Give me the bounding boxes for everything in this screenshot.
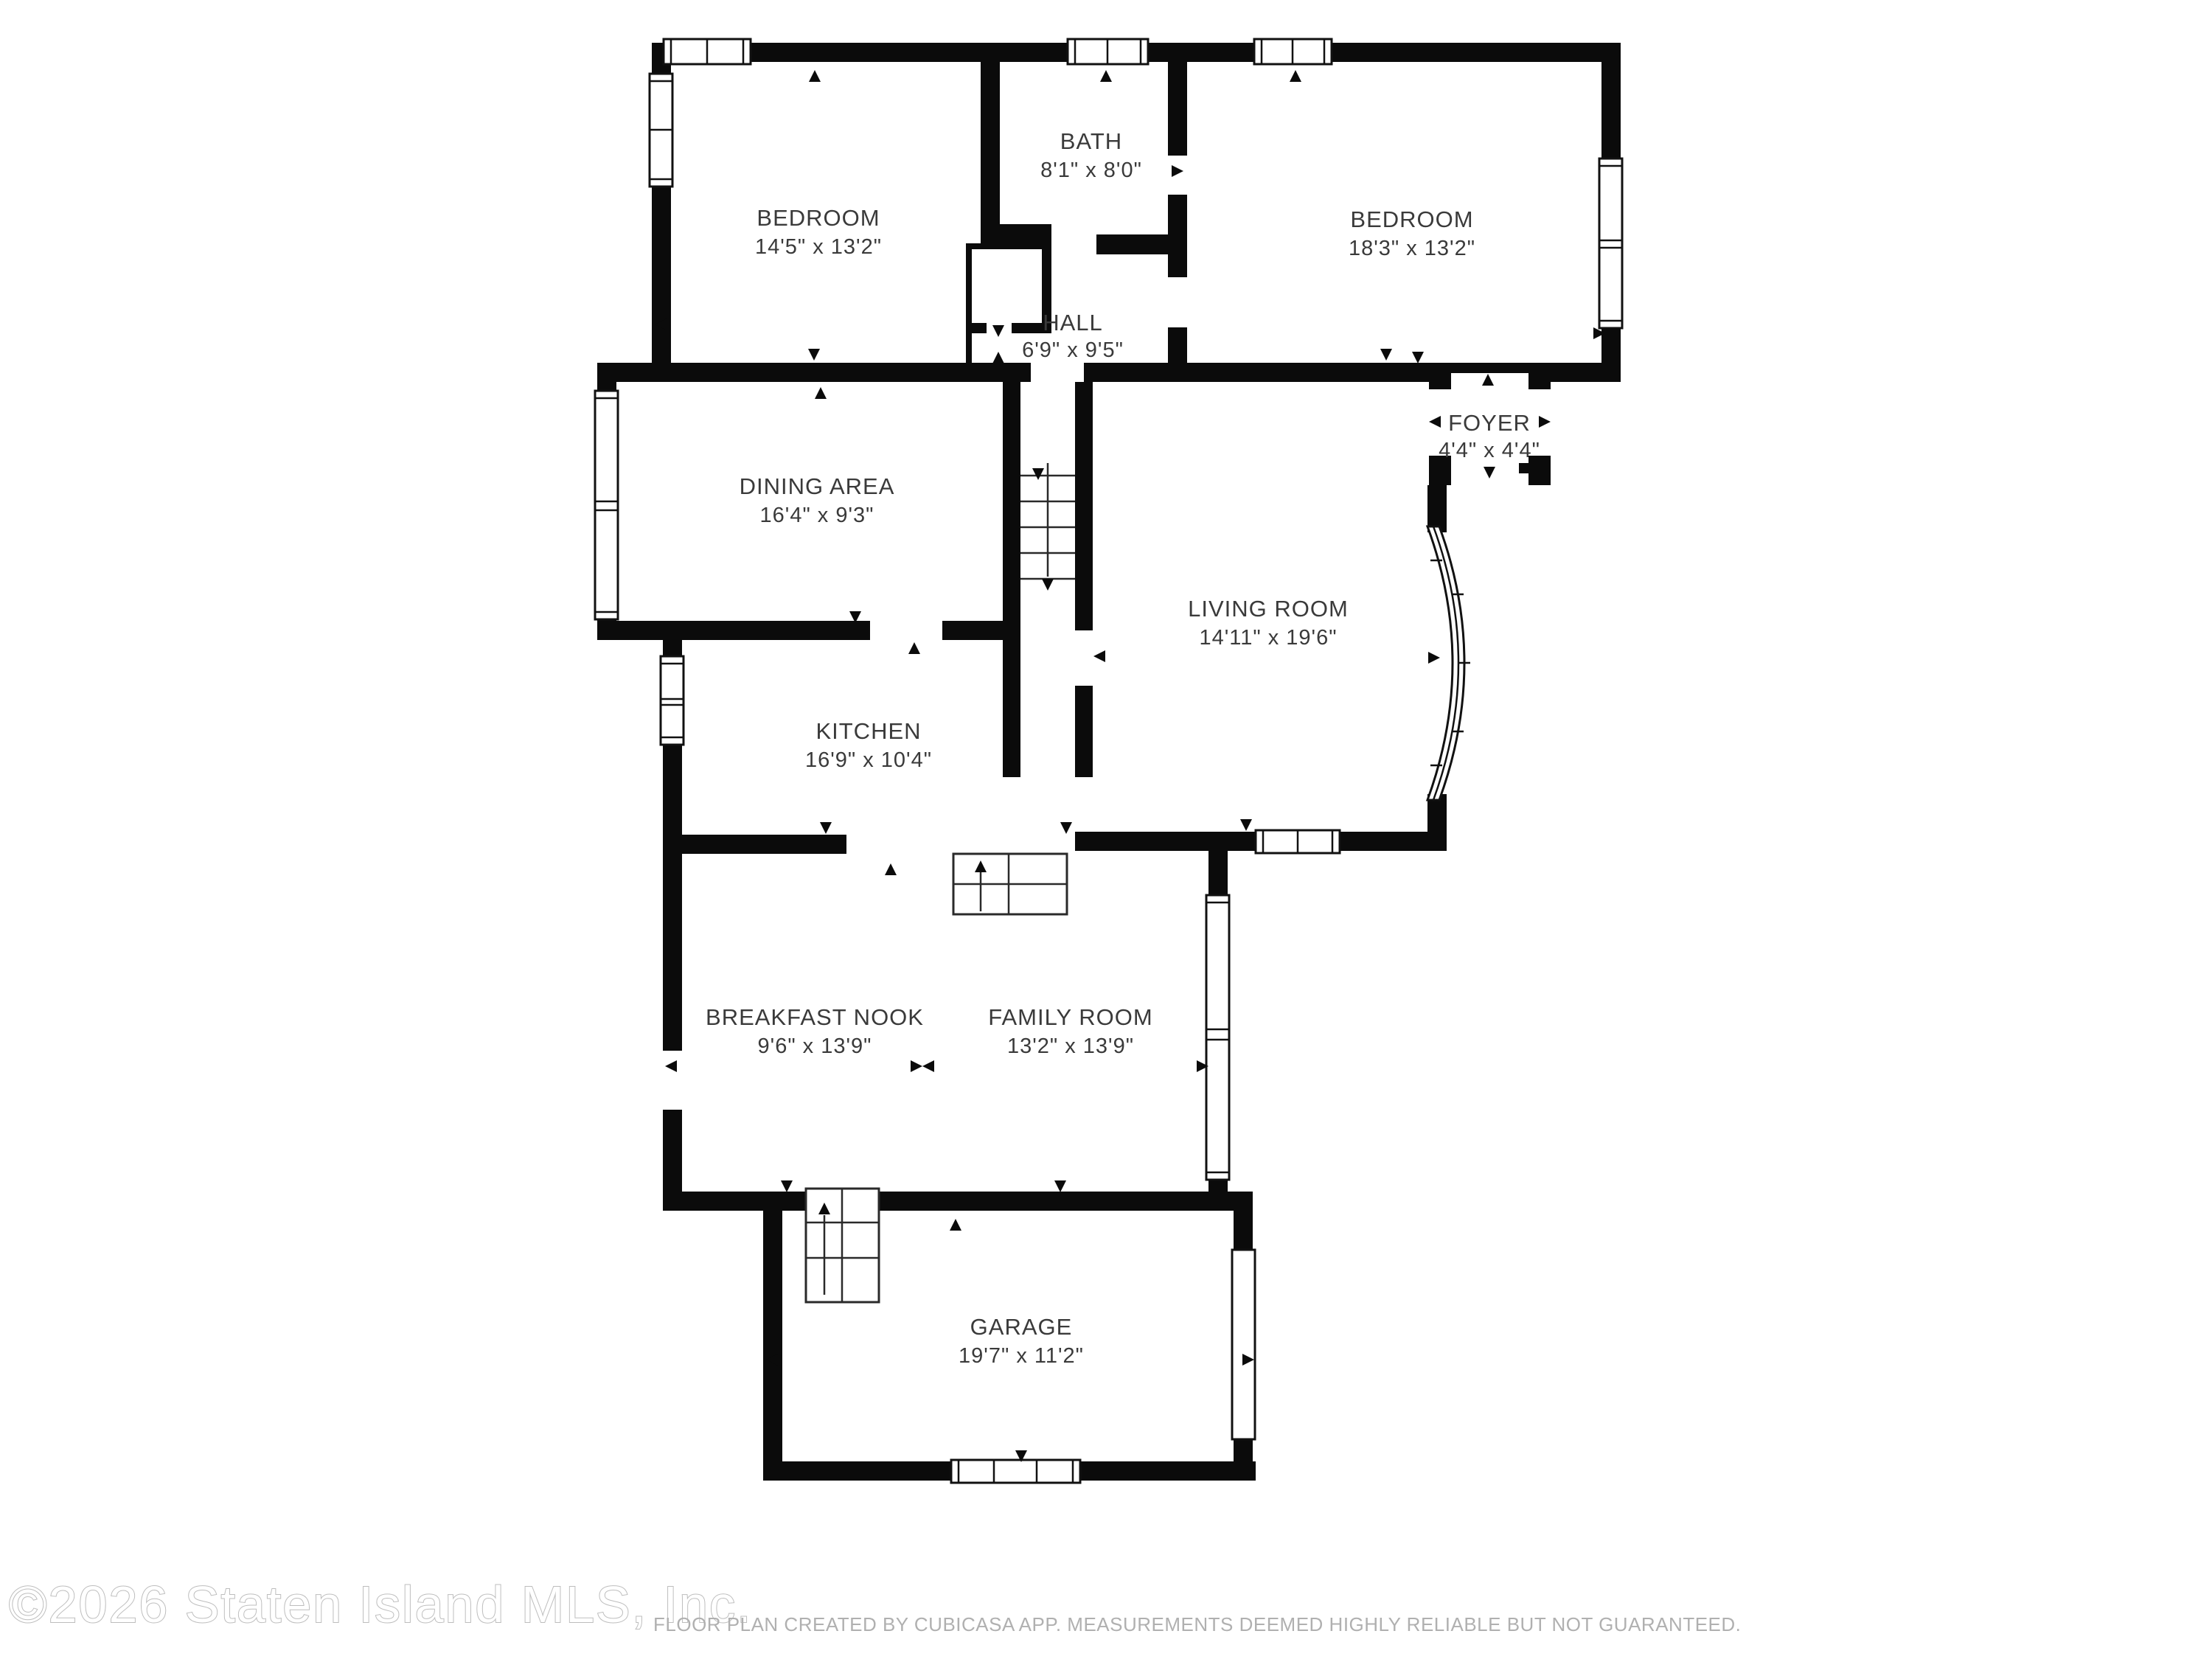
room-label-foyer: FOYER [1448, 410, 1531, 436]
door-marker-icon [908, 642, 920, 654]
door-marker-icon [1482, 374, 1494, 386]
door-markers [655, 70, 1605, 1462]
door-marker-icon [1054, 1180, 1066, 1192]
door-marker-icon [1240, 819, 1252, 831]
room-label-family-room: FAMILY ROOM [988, 1004, 1152, 1030]
room-dims-dining-area: 16'4" x 9'3" [760, 504, 874, 527]
room-label-hall: HALL [1043, 310, 1103, 335]
watermarks: ©2026 Staten Island MLS, Inc. FLOOR PLAN… [9, 1576, 1741, 1635]
room-dims-family-room: 13'2" x 13'9" [1007, 1034, 1134, 1058]
door-marker-icon [665, 1060, 677, 1072]
room-label-bath: BATH [1060, 128, 1122, 154]
room-label-bedroom-right: BEDROOM [1350, 206, 1473, 232]
room-label-dining-area: DINING AREA [740, 473, 895, 499]
door-marker-icon [1093, 650, 1105, 662]
door-marker-icon [1290, 70, 1301, 82]
room-dims-foyer: 4'4" x 4'4" [1439, 439, 1540, 462]
garage-door-opening [1232, 1250, 1255, 1439]
stairs [806, 463, 1075, 1302]
door-marker-icon [808, 349, 820, 361]
door-marker-icon [1032, 468, 1044, 480]
room-label-breakfast-nook: BREAKFAST NOOK [706, 1004, 924, 1030]
door-marker-icon [1060, 822, 1072, 834]
room-dims-garage: 19'7" x 11'2" [959, 1344, 1084, 1368]
window-dining-side [595, 391, 618, 619]
room-dims-kitchen: 16'9" x 10'4" [805, 748, 932, 772]
room-dims-hall: 6'9" x 9'5" [1022, 338, 1124, 362]
disclaimer-text: FLOOR PLAN CREATED BY CUBICASA APP. MEAS… [653, 1613, 1741, 1635]
door-marker-icon [820, 822, 832, 834]
window-bedroom-right-side [1599, 159, 1622, 328]
room-dims-bath: 8'1" x 8'0" [1040, 159, 1142, 182]
door-marker-icon [781, 1180, 793, 1192]
room-label-living-room: LIVING ROOM [1188, 596, 1349, 622]
floor-plan-page: BEDROOM 14'5" x 13'2" BATH 8'1" x 8'0" B… [0, 0, 2212, 1659]
main-stairs-down-arrow [1042, 579, 1054, 591]
door-marker-icon [1380, 349, 1392, 361]
window-garage-bottom [951, 1460, 1080, 1483]
room-dims-living-room: 14'11" x 19'6" [1199, 626, 1337, 650]
door-marker-icon [950, 1219, 961, 1231]
door-marker-icon [885, 863, 897, 875]
door-marker-icon [992, 352, 1004, 364]
door-marker-icon [992, 325, 1004, 337]
window-family-room-side [1206, 895, 1229, 1180]
copyright-watermark: ©2026 Staten Island MLS, Inc. [9, 1576, 752, 1633]
door-marker-icon [922, 1060, 934, 1072]
door-marker-icon [1484, 467, 1495, 479]
door-marker-icon [1429, 416, 1441, 428]
door-marker-icon [809, 70, 821, 82]
room-label-kitchen: KITCHEN [815, 718, 921, 744]
main-stairs-treads [1020, 463, 1075, 579]
door-marker-icon [1100, 70, 1112, 82]
room-dims-bedroom-left: 14'5" x 13'2" [755, 235, 882, 259]
door-marker-icon [1539, 416, 1551, 428]
door-marker-icon [1428, 652, 1440, 664]
door-marker-icon [1412, 352, 1424, 364]
door-marker-icon [911, 1060, 922, 1072]
room-dims-breakfast-nook: 9'6" x 13'9" [758, 1034, 872, 1058]
room-label-garage: GARAGE [970, 1314, 1073, 1340]
room-dims-bedroom-right: 18'3" x 13'2" [1349, 237, 1475, 260]
window-kitchen-side [661, 656, 684, 745]
room-labels: BEDROOM 14'5" x 13'2" BATH 8'1" x 8'0" B… [706, 128, 1540, 1368]
room-label-bedroom-left: BEDROOM [757, 205, 880, 231]
door-marker-icon [815, 387, 827, 399]
door-marker-icon [1172, 165, 1183, 177]
floor-plan-canvas: BEDROOM 14'5" x 13'2" BATH 8'1" x 8'0" B… [0, 0, 2212, 1659]
